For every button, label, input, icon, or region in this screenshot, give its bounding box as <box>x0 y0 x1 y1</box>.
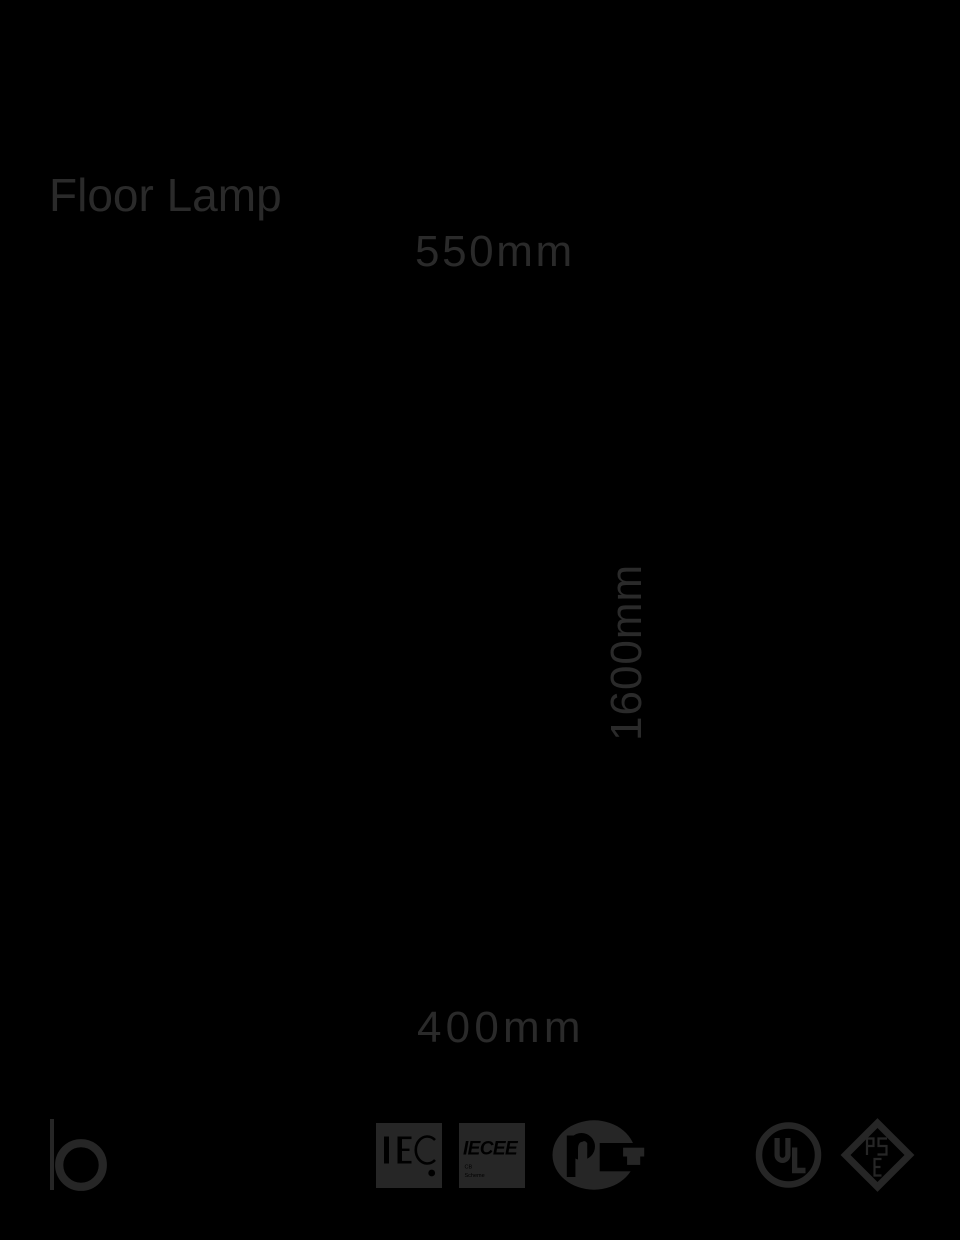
svg-text:Scheme: Scheme <box>465 1173 485 1179</box>
svg-text:CB: CB <box>465 1165 473 1171</box>
svg-text:IECEE: IECEE <box>463 1139 519 1160</box>
